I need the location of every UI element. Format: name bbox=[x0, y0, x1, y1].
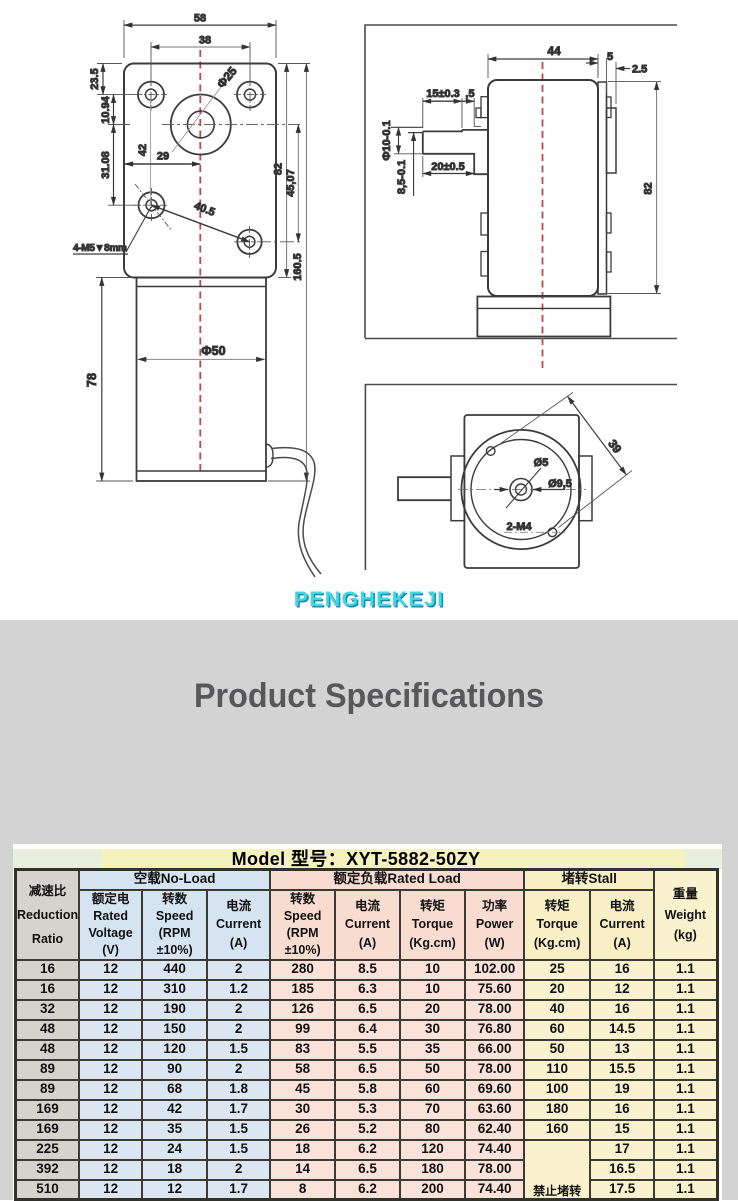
svg-text:38: 38 bbox=[199, 35, 211, 47]
svg-text:42: 42 bbox=[137, 144, 149, 156]
svg-text:15±0.3: 15±0.3 bbox=[426, 88, 460, 100]
svg-text:2-M4: 2-M4 bbox=[506, 521, 532, 533]
svg-text:82: 82 bbox=[643, 182, 655, 194]
svg-text:39: 39 bbox=[605, 437, 624, 456]
svg-text:82: 82 bbox=[273, 163, 285, 175]
svg-text:5: 5 bbox=[607, 51, 613, 63]
svg-text:45,07: 45,07 bbox=[285, 169, 297, 197]
svg-text:10.94: 10.94 bbox=[100, 95, 112, 123]
svg-text:58: 58 bbox=[194, 13, 206, 25]
svg-text:4-M5▼8mm: 4-M5▼8mm bbox=[73, 243, 127, 254]
svg-text:Φ50: Φ50 bbox=[201, 344, 225, 358]
svg-text:29: 29 bbox=[157, 151, 169, 163]
svg-text:160.5: 160.5 bbox=[292, 253, 304, 281]
svg-text:31.08: 31.08 bbox=[100, 151, 112, 179]
svg-text:,5: ,5 bbox=[465, 88, 474, 100]
svg-text:Ø5: Ø5 bbox=[534, 457, 549, 469]
svg-text:8,5-0.1: 8,5-0.1 bbox=[396, 160, 408, 194]
svg-text:78: 78 bbox=[85, 373, 99, 387]
svg-text:Ø9,5: Ø9,5 bbox=[548, 478, 572, 490]
svg-text:20±0.5: 20±0.5 bbox=[431, 161, 465, 173]
svg-text:Φ10-0.1: Φ10-0.1 bbox=[381, 120, 393, 160]
svg-text:40.5: 40.5 bbox=[192, 200, 216, 219]
svg-text:44: 44 bbox=[547, 44, 561, 58]
svg-text:Φ25: Φ25 bbox=[214, 64, 240, 91]
svg-text:23.5: 23.5 bbox=[89, 68, 101, 89]
svg-text:2.5: 2.5 bbox=[632, 64, 647, 76]
